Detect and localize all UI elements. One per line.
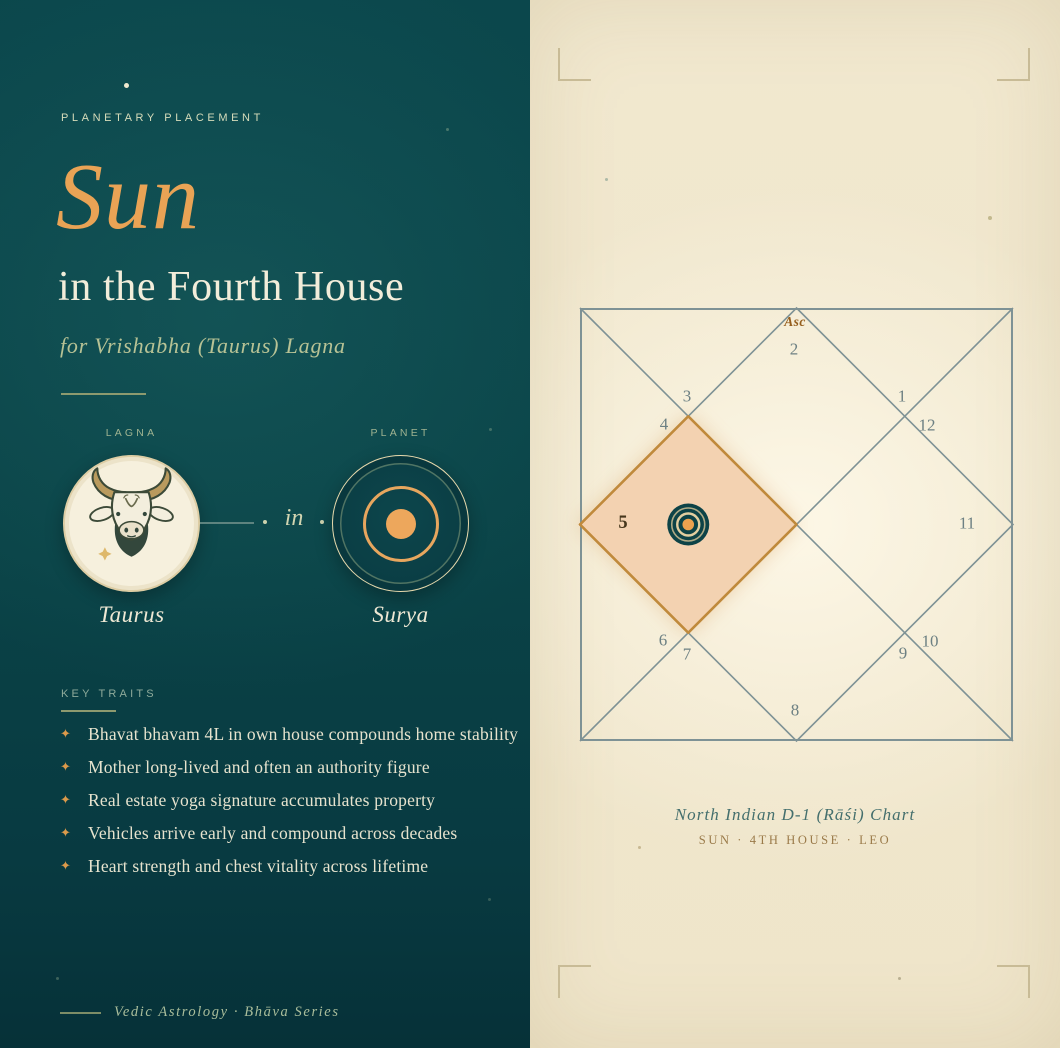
bull-icon: [65, 457, 198, 590]
traits-list: ✦ Bhavat bhavam 4L in own house compound…: [60, 723, 520, 878]
planet-name: Surya: [332, 602, 469, 628]
house-sign: 1: [898, 388, 907, 405]
house-sign-highlighted: 5: [618, 514, 627, 533]
connector-word: in: [271, 505, 317, 532]
sun-dot-icon: [386, 509, 416, 539]
list-item: ✦ Bhavat bhavam 4L in own house compound…: [60, 723, 520, 746]
left-panel: PLANETARY PLACEMENT Sun in the Fourth Ho…: [0, 0, 530, 1048]
list-item: ✦ Heart strength and chest vitality acro…: [60, 855, 520, 878]
connector-line: [200, 522, 254, 524]
house-sign: 6: [659, 632, 668, 649]
chart-caption-title: North Indian D-1 (Rāśi) Chart: [530, 805, 1060, 825]
lagna-label: LAGNA: [63, 427, 200, 439]
trait-text: Real estate yoga signature accumulates p…: [88, 789, 520, 812]
house-sign: 4: [660, 416, 669, 433]
taurus-badge: [63, 455, 200, 592]
star-bullet-icon: ✦: [60, 723, 75, 746]
star-bullet-icon: ✦: [60, 822, 75, 845]
surya-badge: [332, 455, 469, 592]
list-item: ✦ Mother long-lived and often an authori…: [60, 756, 520, 779]
divider: [61, 710, 116, 712]
right-panel: Asc 2 3 4 5 6 7 8 9 10 11 12 1 North Ind…: [530, 0, 1060, 1048]
d1-chart-lines: [580, 308, 1013, 741]
frame-corner-icon: [558, 48, 591, 81]
connector-dot: [263, 520, 267, 524]
footer-series: Vedic Astrology · Bhāva Series: [114, 1004, 340, 1021]
lagna-context-line: for Vrishabha (Taurus) Lagna: [60, 333, 346, 359]
decor-dot: [988, 216, 992, 220]
house-sign: 3: [683, 388, 692, 405]
house-sign: 7: [683, 646, 692, 663]
house-sign: 2: [790, 341, 799, 358]
decor-dot: [124, 83, 129, 88]
trait-text: Bhavat bhavam 4L in own house compounds …: [88, 723, 520, 746]
list-item: ✦ Real estate yoga signature accumulates…: [60, 789, 520, 812]
frame-corner-icon: [997, 48, 1030, 81]
decor-dot: [56, 977, 59, 980]
divider: [61, 393, 146, 395]
star-bullet-icon: ✦: [60, 756, 75, 779]
house-sign: 12: [919, 417, 936, 434]
house-sign: 11: [959, 515, 975, 532]
page-title: Sun: [56, 150, 200, 244]
trait-text: Vehicles arrive early and compound acros…: [88, 822, 520, 845]
trait-text: Mother long-lived and often an authority…: [88, 756, 520, 779]
frame-corner-icon: [558, 965, 591, 998]
star-bullet-icon: ✦: [60, 855, 75, 878]
chart-caption: North Indian D-1 (Rāśi) Chart SUN · 4TH …: [530, 805, 1060, 848]
house-sign: 10: [922, 633, 939, 650]
decor-dot: [488, 898, 491, 901]
eyebrow-label: PLANETARY PLACEMENT: [61, 112, 264, 124]
lagna-name: Taurus: [63, 602, 200, 628]
d1-chart: Asc 2 3 4 5 6 7 8 9 10 11 12 1: [580, 308, 1013, 741]
star-bullet-icon: ✦: [60, 789, 75, 812]
house-sign: 8: [791, 702, 800, 719]
list-item: ✦ Vehicles arrive early and compound acr…: [60, 822, 520, 845]
page-subtitle: in the Fourth House: [58, 264, 404, 310]
decor-dot: [898, 977, 901, 980]
planet-label: PLANET: [332, 427, 469, 439]
connector-dot: [320, 520, 324, 524]
infographic-canvas: PLANETARY PLACEMENT Sun in the Fourth Ho…: [0, 0, 1060, 1048]
footer-rule: [60, 1012, 101, 1014]
decor-dot: [605, 178, 608, 181]
frame-corner-icon: [997, 965, 1030, 998]
house-sign: 9: [899, 645, 908, 662]
trait-text: Heart strength and chest vitality across…: [88, 855, 520, 878]
sun-glyph-icon: [667, 504, 709, 546]
decor-dot: [446, 128, 449, 131]
traits-heading: KEY TRAITS: [61, 688, 157, 700]
decor-dot: [489, 428, 492, 431]
chart-caption-subtitle: SUN · 4TH HOUSE · LEO: [530, 833, 1060, 848]
sparkle-icon: [98, 547, 111, 560]
ascendant-label: Asc: [784, 314, 805, 330]
